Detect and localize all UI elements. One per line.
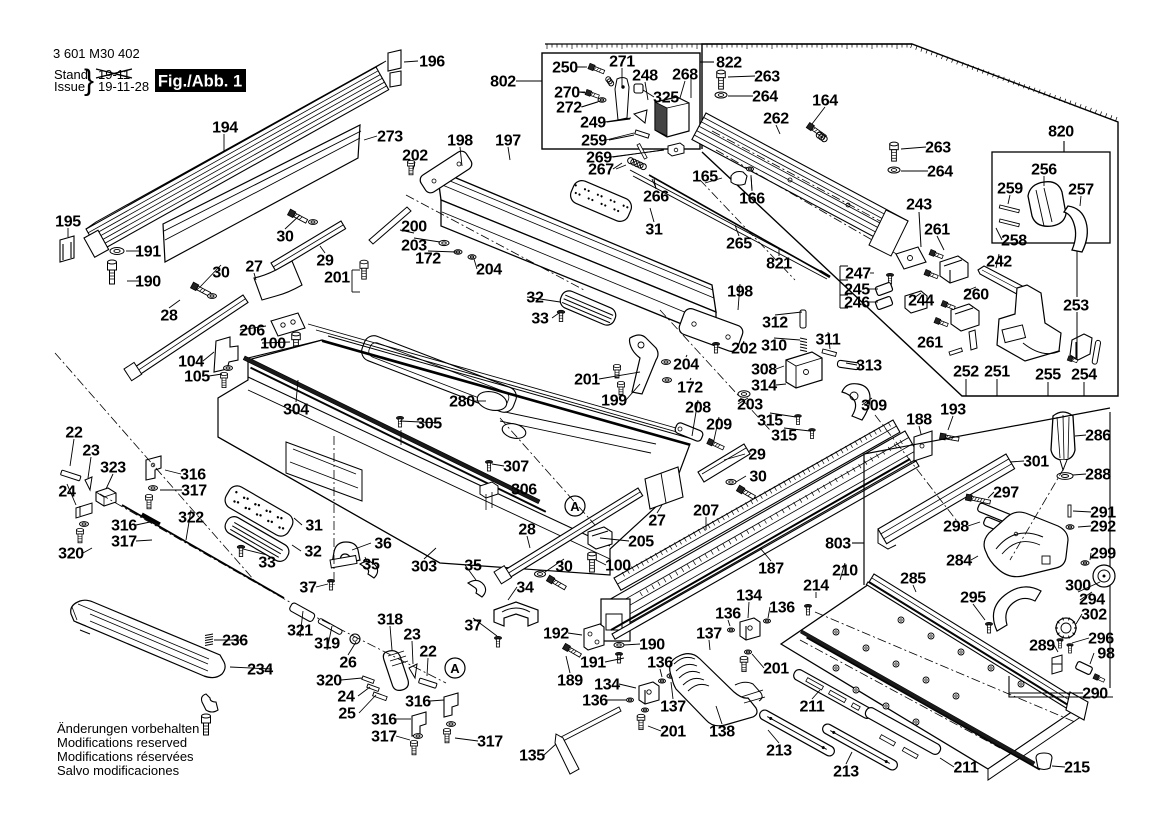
svg-text:100: 100: [260, 336, 286, 353]
svg-text:317: 317: [181, 483, 207, 500]
svg-text:207: 207: [693, 503, 719, 520]
svg-text:256: 256: [1031, 162, 1057, 179]
svg-text:249: 249: [580, 115, 606, 132]
svg-text:190: 190: [639, 637, 665, 654]
svg-text:201: 201: [660, 724, 686, 741]
svg-text:190: 190: [135, 274, 161, 291]
svg-text:303: 303: [411, 559, 437, 576]
svg-text:3 601 M30 402: 3 601 M30 402: [53, 46, 140, 61]
svg-text:25: 25: [338, 706, 356, 723]
svg-text:137: 137: [660, 699, 686, 716]
svg-text:310: 310: [761, 338, 787, 355]
svg-text:209: 209: [706, 417, 732, 434]
svg-text:201: 201: [324, 270, 350, 287]
svg-text:242: 242: [986, 254, 1012, 271]
svg-text:288: 288: [1085, 467, 1111, 484]
svg-text:195: 195: [55, 214, 81, 231]
svg-text:Änderungen vorbehalten: Änderungen vorbehalten: [57, 721, 199, 736]
svg-text:284: 284: [946, 553, 972, 570]
svg-text:35: 35: [362, 557, 380, 574]
svg-text:266: 266: [643, 189, 669, 206]
svg-text:252: 252: [953, 364, 979, 381]
svg-text:35: 35: [464, 558, 482, 575]
svg-text:298: 298: [943, 519, 969, 536]
svg-text:194: 194: [212, 120, 238, 137]
svg-text:172: 172: [415, 251, 441, 268]
svg-text:136: 136: [769, 600, 795, 617]
svg-text:323: 323: [100, 460, 126, 477]
svg-text:A: A: [450, 661, 460, 676]
svg-text:314: 314: [751, 378, 777, 395]
svg-text:258: 258: [1001, 233, 1027, 250]
svg-text:290: 290: [1082, 686, 1108, 703]
svg-text:250: 250: [552, 60, 578, 77]
svg-text:135: 135: [519, 748, 545, 765]
svg-text:264: 264: [927, 164, 953, 181]
svg-text:23: 23: [82, 443, 100, 460]
svg-text:Modifications réservées: Modifications réservées: [57, 749, 194, 764]
svg-text:100: 100: [605, 558, 631, 575]
svg-text:205: 205: [628, 534, 654, 551]
svg-text:307: 307: [503, 459, 529, 476]
svg-text:Issue: Issue: [54, 79, 85, 94]
svg-text:164: 164: [812, 93, 838, 110]
svg-text:134: 134: [736, 588, 762, 605]
svg-text:211: 211: [800, 699, 825, 716]
svg-text:213: 213: [833, 764, 859, 781]
svg-text:251: 251: [984, 364, 1010, 381]
svg-text:202: 202: [402, 148, 428, 165]
svg-text:136: 136: [582, 693, 608, 710]
svg-text:312: 312: [762, 315, 788, 332]
svg-text:210: 210: [832, 563, 858, 580]
svg-text:138: 138: [709, 724, 735, 741]
svg-text:320: 320: [58, 546, 84, 563]
svg-text:289: 289: [1029, 638, 1055, 655]
svg-text:313: 313: [856, 358, 882, 375]
svg-text:166: 166: [739, 191, 765, 208]
svg-text:198: 198: [447, 133, 473, 150]
svg-text:36: 36: [374, 536, 392, 553]
svg-text:Fig./Abb. 1: Fig./Abb. 1: [158, 73, 242, 91]
svg-text:24: 24: [337, 689, 355, 706]
svg-text:802: 802: [490, 74, 516, 91]
svg-text:317: 317: [477, 734, 503, 751]
svg-text:263: 263: [925, 140, 951, 157]
svg-text:A: A: [570, 499, 580, 514]
svg-text:253: 253: [1063, 298, 1089, 315]
svg-text:306: 306: [511, 482, 537, 499]
svg-text:22: 22: [65, 425, 83, 442]
svg-text:203: 203: [737, 397, 763, 414]
svg-text:302: 302: [1081, 607, 1107, 624]
svg-text:263: 263: [754, 69, 780, 86]
svg-text:187: 187: [758, 561, 784, 578]
svg-text:316: 316: [111, 518, 137, 535]
svg-text:299: 299: [1090, 546, 1116, 563]
svg-text:200: 200: [401, 219, 427, 236]
svg-text:19-11-28: 19-11-28: [98, 79, 149, 94]
svg-text:268: 268: [672, 67, 698, 84]
svg-text:134: 134: [594, 677, 620, 694]
svg-text:318: 318: [377, 612, 403, 629]
svg-text:315: 315: [771, 428, 797, 445]
svg-text:247: 247: [845, 266, 871, 283]
svg-text:137: 137: [696, 626, 722, 643]
svg-text:208: 208: [685, 400, 711, 417]
svg-text:33: 33: [258, 555, 276, 572]
svg-text:236: 236: [222, 633, 248, 650]
svg-text:192: 192: [543, 626, 569, 643]
svg-text:23: 23: [403, 627, 421, 644]
svg-text:31: 31: [645, 222, 663, 239]
svg-text:32: 32: [304, 544, 322, 561]
svg-text:29: 29: [748, 447, 766, 464]
svg-text:821: 821: [766, 256, 792, 273]
svg-text:202: 202: [731, 341, 757, 358]
svg-text:259: 259: [997, 181, 1023, 198]
svg-text:215: 215: [1064, 760, 1090, 777]
svg-text:305: 305: [416, 416, 442, 433]
svg-text:27: 27: [648, 513, 666, 530]
svg-text:201: 201: [574, 372, 600, 389]
svg-text:34: 34: [516, 580, 534, 597]
svg-text:257: 257: [1068, 182, 1094, 199]
svg-text:197: 197: [495, 133, 521, 150]
svg-text:259: 259: [581, 133, 607, 150]
svg-text:189: 189: [557, 673, 583, 690]
svg-text:193: 193: [940, 402, 966, 419]
svg-text:265: 265: [726, 236, 752, 253]
svg-text:30: 30: [212, 265, 230, 282]
svg-text:105: 105: [184, 369, 210, 386]
svg-text:286: 286: [1085, 428, 1111, 445]
svg-text:267: 267: [588, 162, 614, 179]
svg-text:199: 199: [601, 393, 627, 410]
svg-text:255: 255: [1035, 367, 1061, 384]
svg-text:820: 820: [1048, 124, 1074, 141]
svg-text:320: 320: [316, 673, 342, 690]
svg-text:803: 803: [825, 536, 851, 553]
svg-text:191: 191: [580, 655, 606, 672]
svg-text:Modifications reserved: Modifications reserved: [57, 735, 187, 750]
svg-text:30: 30: [749, 469, 767, 486]
svg-text:246: 246: [844, 295, 870, 312]
svg-text:37: 37: [299, 580, 317, 597]
svg-text:316: 316: [405, 694, 431, 711]
svg-text:234: 234: [247, 662, 273, 679]
svg-text:211: 211: [954, 760, 979, 777]
svg-text:28: 28: [518, 522, 536, 539]
svg-text:316: 316: [180, 467, 206, 484]
svg-text:26: 26: [339, 655, 357, 672]
svg-text:213: 213: [766, 743, 792, 760]
svg-text:204: 204: [673, 357, 699, 374]
svg-text:273: 273: [377, 129, 403, 146]
svg-text:301: 301: [1023, 454, 1049, 471]
svg-text:309: 309: [861, 398, 887, 415]
svg-text:31: 31: [305, 518, 323, 535]
svg-text:308: 308: [751, 362, 777, 379]
svg-text:191: 191: [135, 244, 161, 261]
svg-text:261: 261: [917, 335, 943, 352]
svg-text:98: 98: [1097, 646, 1115, 663]
svg-text:317: 317: [111, 534, 137, 551]
svg-text:30: 30: [555, 559, 573, 576]
svg-text:248: 248: [632, 68, 658, 85]
svg-text:28: 28: [160, 308, 178, 325]
svg-text:280: 280: [449, 394, 475, 411]
svg-text:304: 304: [283, 402, 309, 419]
svg-text:33: 33: [531, 311, 549, 328]
svg-text:822: 822: [716, 55, 742, 72]
svg-text:254: 254: [1071, 367, 1097, 384]
svg-text:322: 322: [178, 510, 204, 527]
svg-text:196: 196: [419, 54, 445, 71]
svg-text:292: 292: [1090, 519, 1116, 536]
svg-text:214: 214: [803, 578, 829, 595]
svg-text:22: 22: [419, 644, 437, 661]
svg-text:325: 325: [653, 90, 679, 107]
svg-text:29: 29: [316, 253, 334, 270]
svg-text:260: 260: [963, 287, 989, 304]
svg-text:172: 172: [677, 380, 703, 397]
svg-text:}: }: [84, 64, 94, 97]
svg-text:Salvo modificaciones: Salvo modificaciones: [57, 763, 180, 778]
svg-text:201: 201: [763, 661, 789, 678]
svg-text:30: 30: [276, 229, 294, 246]
svg-text:317: 317: [371, 729, 397, 746]
svg-text:204: 204: [476, 262, 502, 279]
svg-text:316: 316: [371, 712, 397, 729]
svg-text:297: 297: [993, 485, 1019, 502]
svg-text:243: 243: [906, 197, 932, 214]
svg-text:244: 244: [908, 293, 934, 310]
svg-text:264: 264: [752, 89, 778, 106]
svg-text:37: 37: [464, 618, 482, 635]
svg-text:272: 272: [556, 100, 582, 117]
